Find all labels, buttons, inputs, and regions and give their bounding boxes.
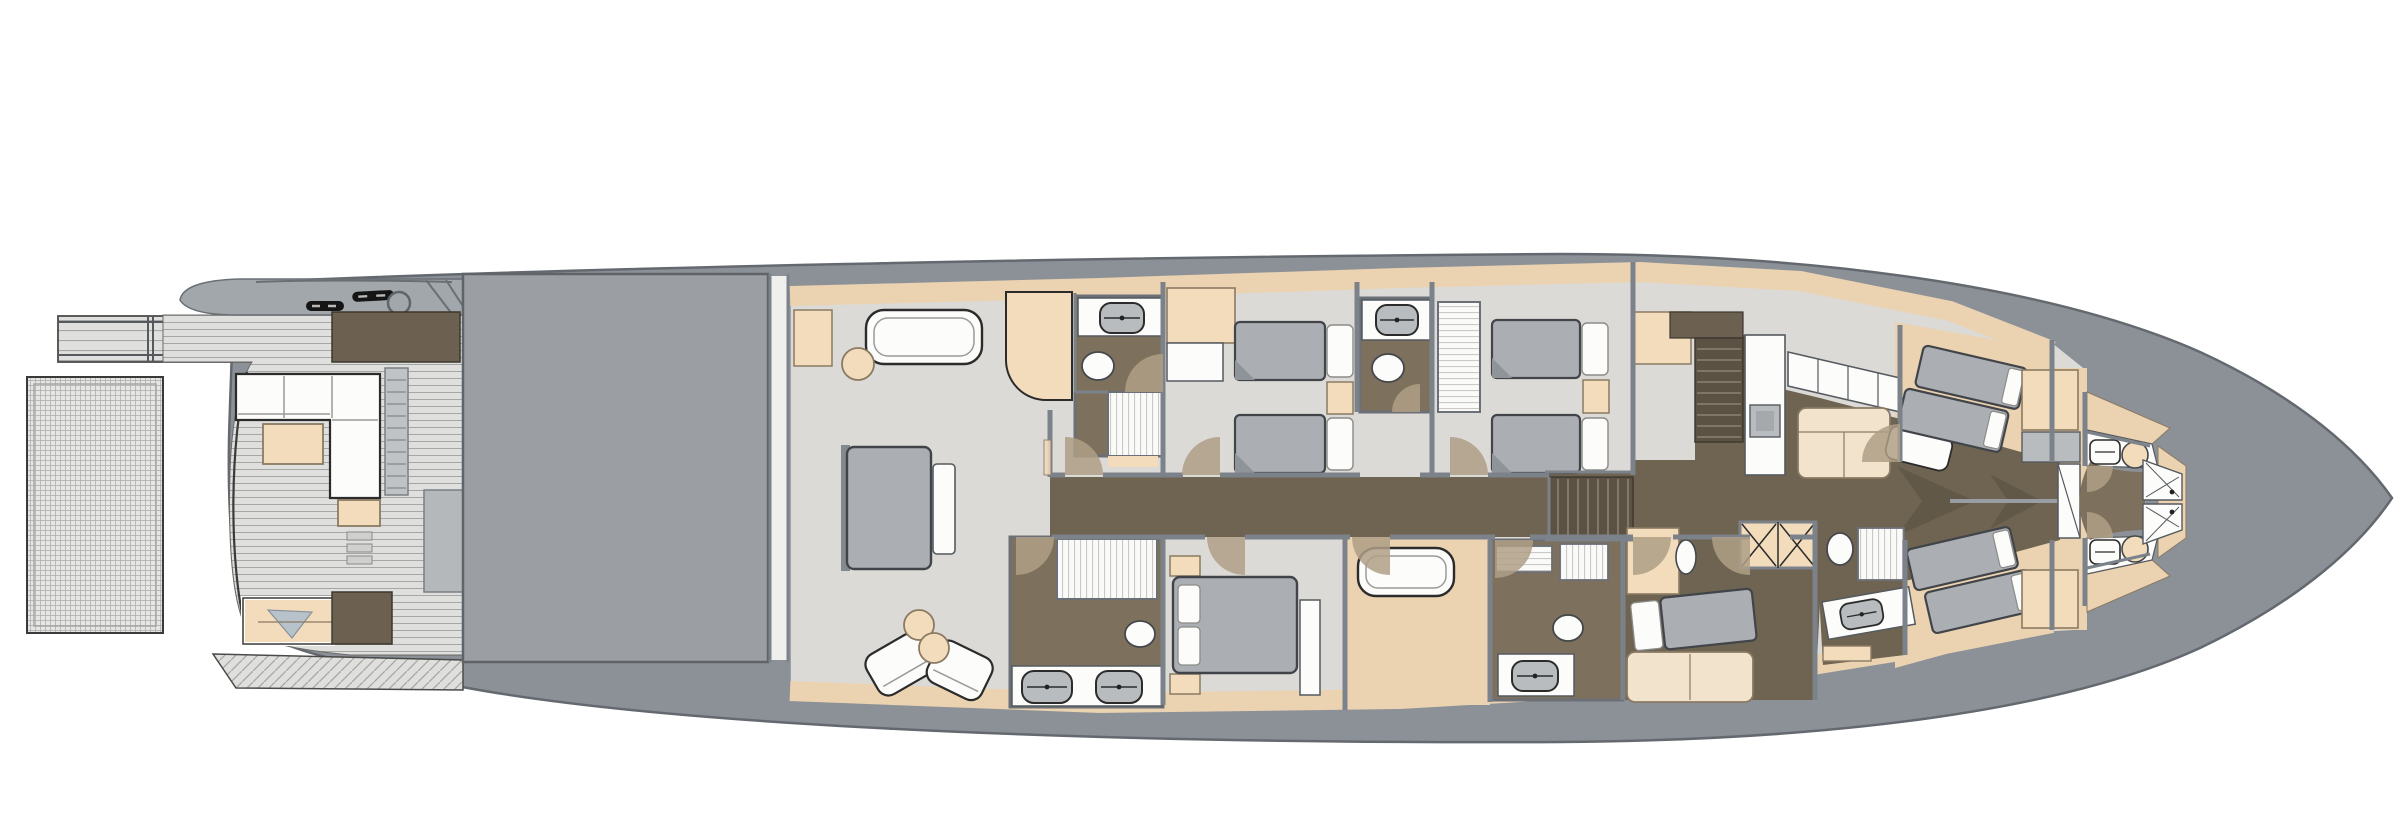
corridor-stairs (1549, 477, 1633, 537)
garage-door-platform (424, 490, 464, 592)
closet (1167, 343, 1223, 381)
shower-glass (1858, 528, 1904, 580)
master-side-table-2 (919, 633, 949, 663)
sink-drain (1533, 674, 1538, 679)
shower-mat (1108, 456, 1158, 467)
tender-garage (463, 274, 788, 662)
shelf (1823, 646, 1871, 661)
louver-wardrobe (1438, 302, 1480, 412)
nightstand (1327, 382, 1353, 414)
toilet (1553, 615, 1583, 641)
yacht-floor-plan-page (0, 0, 2400, 835)
deck-hatch (388, 292, 410, 314)
single-bed-1 (1492, 320, 1580, 378)
single-bed-1 (1235, 322, 1325, 380)
bow-tan-wedge-forward (2158, 446, 2186, 558)
toilet (1082, 352, 1114, 380)
shower-window-2 (1560, 544, 1608, 580)
pillow-2 (1327, 418, 1353, 470)
accommodation-interior (790, 262, 2186, 712)
wardrobe (1167, 288, 1235, 343)
pillow-1 (1327, 325, 1353, 377)
vip-pillow-1 (1178, 585, 1200, 623)
vip-dresser (1300, 600, 1320, 695)
door-leaf (1044, 440, 1051, 475)
crew-stairs (1695, 338, 1743, 442)
deck-coffee-table (263, 424, 323, 464)
main-corridor-floor (1050, 477, 1545, 537)
toilet (1827, 533, 1853, 565)
sink-drain-2 (1117, 685, 1122, 690)
shower-glass (1108, 392, 1163, 456)
sink-drain (1120, 316, 1125, 321)
superstructure-overhang (180, 279, 468, 315)
swim-platform (27, 377, 163, 633)
swim-platform-surface (27, 377, 163, 633)
yacht-lower-deck-plan (0, 0, 2400, 835)
stern-area (27, 279, 468, 690)
toilet (1372, 354, 1404, 382)
pillow-2 (1582, 418, 1608, 470)
hand-basin (1676, 540, 1696, 574)
master-round-table (842, 348, 874, 380)
shower-glass (1057, 539, 1157, 599)
master-vanity (1006, 292, 1072, 400)
single-bed-2 (1235, 415, 1325, 473)
deck-cabinet-bottom (332, 592, 392, 644)
deck-steps (347, 532, 372, 564)
single-bed-2 (1492, 415, 1580, 473)
aft-deck-hatched-strip (213, 654, 463, 690)
cooktop-inner (1756, 411, 1774, 431)
master-double-bed (847, 447, 931, 569)
nightstand-bottom (1170, 674, 1200, 694)
deck-side-cabinet (338, 500, 380, 526)
bulkhead-gap (770, 276, 788, 660)
deck-cabinet-top (332, 312, 460, 362)
nightstand-top (1170, 556, 1200, 576)
laundry-hatch (1740, 522, 1816, 568)
side-stairs-up (385, 368, 408, 495)
sun-pad (243, 598, 333, 644)
toilet (1125, 621, 1155, 647)
sink-drain (1395, 318, 1400, 323)
stairs-up-landing (1670, 312, 1743, 338)
sink-drain-1 (1045, 685, 1050, 690)
master-side-cabinet (794, 310, 832, 366)
tender-garage-block (463, 274, 768, 662)
nightstand (1583, 380, 1609, 413)
master-foot-bench (933, 464, 955, 554)
stair-well (1549, 477, 1633, 537)
deck-cleat-aft (306, 301, 344, 311)
pillow-1 (1582, 323, 1608, 375)
vip-pillow-2 (1178, 627, 1200, 665)
